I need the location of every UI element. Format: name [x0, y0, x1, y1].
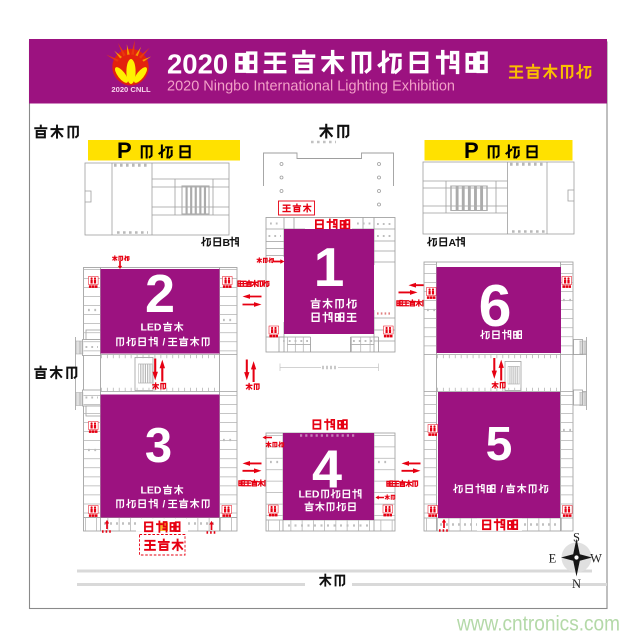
- svg-text:5: 5: [486, 418, 513, 471]
- svg-text:/: /: [163, 337, 166, 348]
- svg-text:P: P: [464, 138, 479, 163]
- svg-text:6: 6: [479, 273, 512, 339]
- svg-text:LED: LED: [141, 485, 162, 497]
- svg-text:P: P: [117, 138, 132, 163]
- svg-text:2020 CNLL: 2020 CNLL: [111, 85, 151, 94]
- svg-text:N: N: [572, 577, 581, 591]
- svg-text:E: E: [549, 552, 557, 566]
- svg-text:LED: LED: [141, 322, 162, 334]
- svg-text:3: 3: [145, 419, 172, 473]
- svg-text:1: 1: [314, 236, 345, 298]
- svg-text:A: A: [449, 237, 457, 249]
- svg-text:S: S: [573, 531, 580, 545]
- svg-text:2: 2: [145, 264, 175, 324]
- svg-text:2020: 2020: [167, 49, 228, 80]
- svg-text:W: W: [590, 552, 602, 566]
- svg-text:2020 Ningbo International Ligh: 2020 Ningbo International Lighting Exhib…: [167, 79, 455, 95]
- svg-text:/: /: [501, 484, 504, 495]
- svg-text:www.cntronics.com: www.cntronics.com: [456, 612, 620, 636]
- svg-text:LED: LED: [299, 489, 320, 501]
- svg-text:B: B: [223, 237, 231, 249]
- svg-text:/: /: [163, 499, 166, 510]
